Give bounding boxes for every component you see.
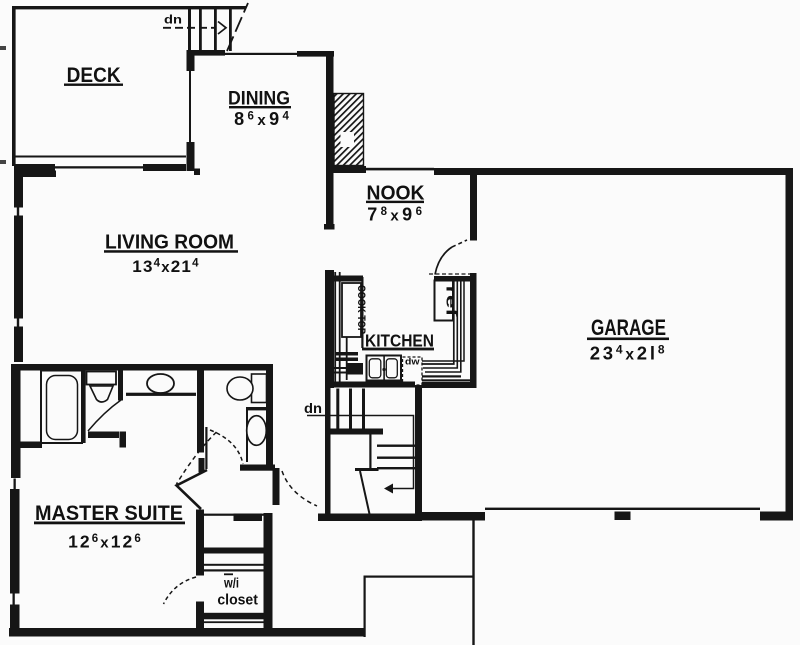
svg-text:dn: dn — [164, 12, 182, 26]
svg-text:126x126: 126x126 — [68, 532, 143, 552]
svg-text:GARAGE: GARAGE — [591, 315, 666, 340]
svg-text:dw: dw — [405, 357, 421, 367]
svg-text:DECK: DECK — [67, 64, 121, 87]
svg-text:w/i: w/i — [223, 576, 239, 591]
svg-text:dn: dn — [304, 400, 322, 416]
svg-text:134x214: 134x214 — [132, 257, 199, 276]
svg-text:closet: closet — [217, 593, 258, 609]
svg-text:KITCHEN: KITCHEN — [365, 331, 434, 351]
svg-text:234x2l8: 234x2l8 — [590, 343, 668, 364]
svg-text:COOK TOP: COOK TOP — [355, 285, 367, 334]
svg-text:MASTER SUITE: MASTER SUITE — [35, 501, 183, 525]
